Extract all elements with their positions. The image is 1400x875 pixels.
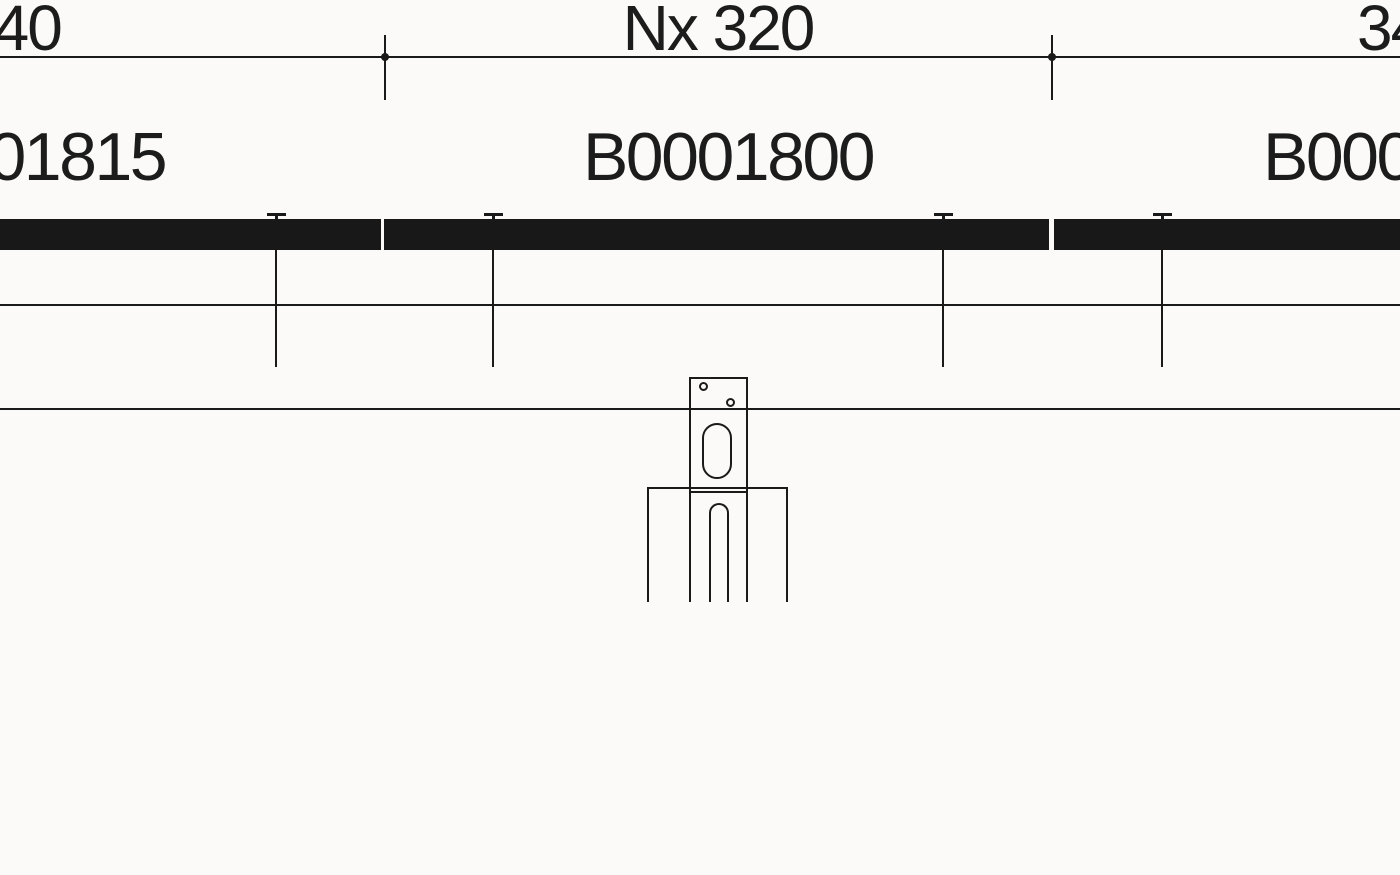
fastener-mark-3-stem [942, 215, 945, 221]
section-line-upper [0, 304, 1400, 306]
bracket-top-plate [689, 377, 748, 410]
dimension-tick-right [1051, 35, 1053, 100]
bracket-body-right-edge [746, 409, 748, 602]
part-label-left: B0001815 [0, 123, 165, 191]
fastener-mark-1-stem [275, 215, 278, 221]
dimension-tick-right-dot [1048, 53, 1056, 61]
bracket-adjustment-slot [709, 503, 729, 602]
dimension-tick-left [384, 35, 386, 100]
part-label-right: B0001815 [1263, 123, 1400, 191]
dimension-label-left: 340 [0, 0, 61, 60]
technical-drawing: 340 Nx 320 340 B0001815 B0001800 B000181… [0, 0, 1400, 875]
bracket-body-bottom-line [689, 491, 748, 493]
bracket-outer-top-edge [647, 487, 788, 489]
fastener-line-3 [942, 250, 944, 367]
bracket-screw-hole-1 [699, 382, 708, 391]
bracket-outer-right-edge [786, 487, 788, 602]
part-label-center: B0001800 [583, 123, 873, 191]
dimension-tick-left-dot [381, 53, 389, 61]
bracket-outer-left-edge [647, 487, 649, 602]
rail-joint-left [381, 219, 384, 250]
rail-joint-right [1049, 219, 1054, 250]
fastener-mark-4-stem [1161, 215, 1164, 221]
dimension-label-right: 340 [1357, 0, 1400, 60]
fastener-mark-2-stem [492, 215, 495, 221]
fastener-line-2 [492, 250, 494, 367]
bracket-body-left-edge [689, 409, 691, 602]
fastener-line-4 [1161, 250, 1163, 367]
rail-bar [0, 219, 1400, 250]
bracket-oval-slot [702, 423, 732, 479]
dimension-label-center: Nx 320 [623, 0, 814, 60]
fastener-line-1 [275, 250, 277, 367]
bracket-screw-hole-2 [726, 398, 735, 407]
